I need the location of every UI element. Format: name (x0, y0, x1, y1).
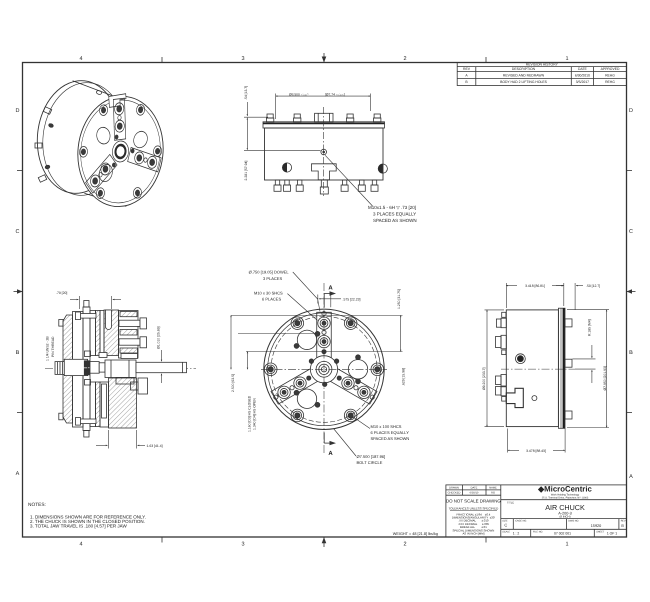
svg-text:M10 x 100 SHCS: M10 x 100 SHCS (371, 424, 402, 429)
svg-text:3.478 [88.43]: 3.478 [88.43] (526, 449, 546, 453)
svg-text:BOLT CIRCLE: BOLT CIRCLE (357, 460, 383, 465)
svg-text:A: A (328, 285, 333, 292)
svg-text:NOTES:: NOTES: (28, 502, 46, 508)
svg-text:2: 2 (403, 542, 406, 548)
svg-text:Ø.750 [19.05] DOWEL: Ø.750 [19.05] DOWEL (249, 270, 290, 275)
svg-text:3.418 [86.81]: 3.418 [86.81] (525, 284, 545, 288)
svg-text:PIN THREAD: PIN THREAD (51, 336, 55, 357)
svg-text:3/5/2017: 3/5/2017 (576, 80, 589, 84)
svg-text:6/30/2010: 6/30/2010 (575, 73, 590, 77)
svg-text:Ø7.500 [187.96]: Ø7.500 [187.96] (357, 454, 386, 459)
svg-text:B: B (16, 350, 20, 356)
svg-text:C: C (504, 523, 507, 528)
svg-text:1.250 [31.75]: 1.250 [31.75] (397, 289, 401, 309)
svg-text:BODY HAD 2 LIFTING HOLES: BODY HAD 2 LIFTING HOLES (500, 80, 548, 84)
svg-text:Ø1.010 [25.65]: Ø1.010 [25.65] (156, 327, 160, 349)
svg-text:B: B (629, 350, 633, 356)
svg-text:R.185 [M4]: R.185 [M4] (588, 319, 592, 336)
svg-text:25 S. Terminal Drive, Plainvie: 25 S. Terminal Drive, Plainview, NY 1180… (542, 496, 589, 499)
svg-text:4: 4 (79, 542, 82, 548)
svg-text:4: 4 (79, 56, 82, 62)
svg-text:07 002 001: 07 002 001 (554, 531, 571, 535)
svg-text:REHG: REHG (605, 80, 615, 84)
svg-text:3: 3 (241, 542, 244, 548)
svg-text:Ø8.500 ₊:₀₀₁⁵: Ø8.500 ₊:₀₀₁⁵ (289, 92, 309, 96)
svg-text:.79 [20]: .79 [20] (56, 291, 67, 295)
svg-text:2.500 [63.5]: 2.500 [63.5] (231, 374, 235, 392)
svg-text:REVISION HISTORY: REVISION HISTORY (526, 63, 559, 67)
svg-text:.50 [12.7]: .50 [12.7] (586, 284, 600, 288)
svg-text:CHECKED: CHECKED (448, 492, 461, 495)
svg-text:1 : 2: 1 : 2 (513, 531, 520, 535)
svg-text:RG: RG (491, 492, 495, 495)
svg-text:D: D (629, 108, 633, 114)
svg-text:6 PLACES EQUALLY: 6 PLACES EQUALLY (371, 430, 410, 435)
svg-text:1 OF 1: 1 OF 1 (607, 531, 617, 535)
svg-text:3 PLACES: 3 PLACES (263, 276, 282, 281)
svg-text:2.281 [57.94]: 2.281 [57.94] (244, 161, 248, 181)
svg-text:C: C (16, 229, 20, 235)
svg-text:M10x1.5 - 6H ▽ .73 [20]: M10x1.5 - 6H ▽ .73 [20] (368, 205, 416, 210)
svg-text:REVISED AND REDRAWN: REVISED AND REDRAWN (503, 73, 545, 77)
svg-text:DWG NO.: DWG NO. (568, 520, 579, 523)
svg-text:6 PLACES: 6 PLACES (262, 297, 281, 302)
svg-text:.54 [13.7]: .54 [13.7] (244, 86, 248, 100)
svg-text:1.160 [D3] HS CLOSED: 1.160 [D3] HS CLOSED (247, 395, 251, 432)
svg-text:Ø7.950 [201.93]: Ø7.950 [201.93] (603, 366, 607, 390)
svg-text:3: 3 (241, 56, 244, 62)
svg-text:TOLERANCES UNLESS SPECIFIED: TOLERANCES UNLESS SPECIFIED (449, 507, 500, 511)
svg-text:SCALE: SCALE (502, 530, 510, 533)
svg-text:Ø9.200 [233.7]: Ø9.200 [233.7] (482, 368, 486, 390)
svg-text:◆MicroCentric: ◆MicroCentric (537, 485, 592, 494)
svg-text:DATE: DATE (578, 67, 588, 71)
svg-text:DESCRIPTION: DESCRIPTION (512, 67, 536, 71)
svg-text:3. TOTAL JAW TRAVEL IS .180 [4: 3. TOTAL JAW TRAVEL IS .180 [4.57] PER J… (30, 524, 127, 529)
svg-text:1 1/4 UNS2 - 2B: 1 1/4 UNS2 - 2B (46, 336, 50, 361)
svg-text:1.63 [41.4]: 1.63 [41.4] (147, 444, 163, 448)
svg-text:REV: REV (463, 67, 471, 71)
svg-text:2: 2 (403, 56, 406, 62)
svg-text:SPACED AS SHOWN: SPACED AS SHOWN (373, 218, 417, 223)
svg-text:SPACED AS SHOWN: SPACED AS SHOWN (371, 436, 410, 441)
svg-text:(8 INCH): (8 INCH) (559, 515, 570, 519)
svg-text:FILE NO.: FILE NO. (533, 530, 543, 533)
svg-text:6/30/10: 6/30/10 (470, 492, 479, 495)
svg-text:1: 1 (565, 56, 568, 62)
svg-text:1.340 [D4] HS OPEN: 1.340 [D4] HS OPEN (252, 398, 256, 430)
svg-text:AS IN INCH [MM]: AS IN INCH [MM] (462, 532, 484, 536)
svg-text:[Ø7.74 ₊₀:₀₂₅]: [Ø7.74 ₊₀:₀₂₅] (325, 92, 345, 96)
svg-text:A: A (328, 450, 333, 457)
svg-text:REHG: REHG (605, 73, 615, 77)
svg-text:DATE: DATE (471, 486, 478, 489)
svg-text:SHEET: SHEET (596, 530, 605, 533)
svg-text:1: 1 (565, 542, 568, 548)
svg-text:.575 [22.23]: .575 [22.23] (343, 297, 361, 301)
svg-text:DO NOT SCALE DRAWING: DO NOT SCALE DRAWING (446, 498, 501, 503)
svg-text:.629 [15.98]: .629 [15.98] (401, 368, 405, 386)
svg-text:D: D (16, 108, 20, 114)
svg-text:NAME: NAME (489, 486, 497, 489)
svg-text:DRAWN: DRAWN (449, 486, 459, 489)
svg-text:C: C (629, 229, 633, 235)
svg-text:WEIGHT = 48 [21.8] lbs/kg: WEIGHT = 48 [21.8] lbs/kg (393, 532, 438, 536)
svg-text:A: A (16, 471, 20, 477)
svg-text:APPROVED: APPROVED (601, 67, 620, 71)
svg-text:M10 x 30 SHCS: M10 x 30 SHCS (254, 291, 283, 296)
svg-text:CAGE NO.: CAGE NO. (515, 520, 527, 523)
svg-text:15920: 15920 (591, 524, 602, 528)
svg-text:A: A (629, 474, 633, 480)
svg-text:3 PLACES EQUALLY: 3 PLACES EQUALLY (373, 212, 416, 217)
svg-text:REV: REV (621, 520, 626, 523)
svg-text:TITLE: TITLE (507, 502, 514, 505)
